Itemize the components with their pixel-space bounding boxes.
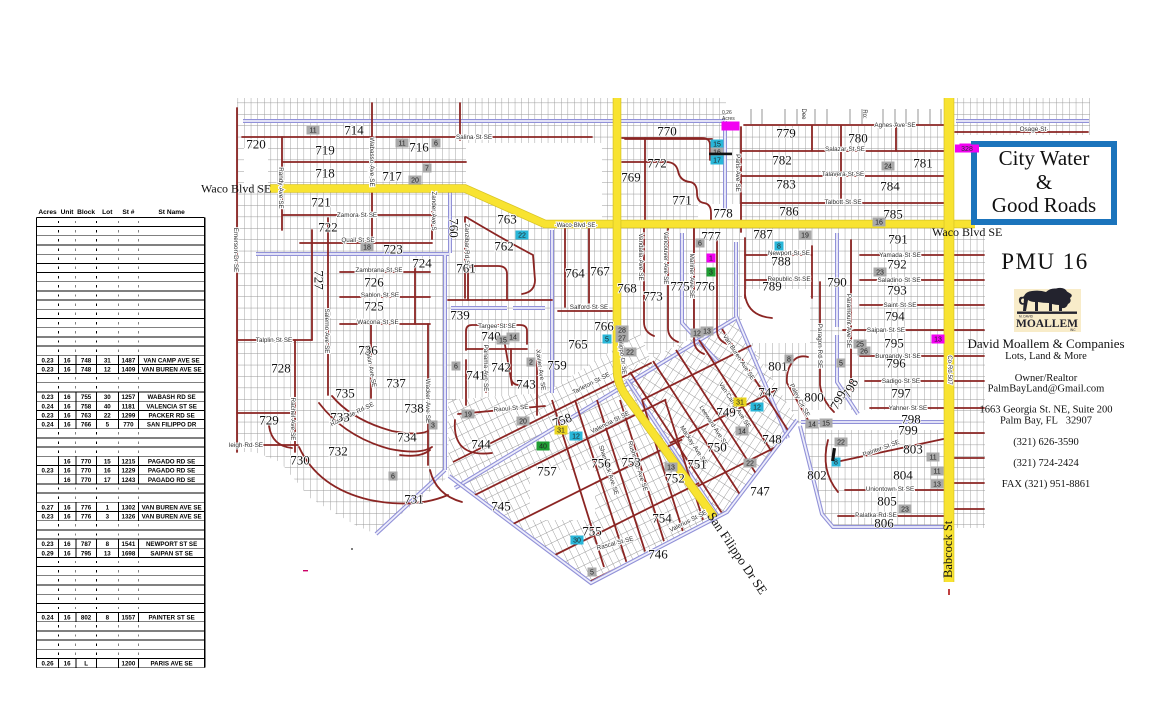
svg-text:726: 726 [364, 275, 384, 290]
svg-text:759: 759 [547, 358, 567, 373]
svg-text:16: 16 [64, 541, 71, 548]
svg-text:Zamora·St·SE: Zamora·St·SE [337, 212, 377, 219]
svg-text:737: 737 [386, 376, 406, 391]
svg-text:1200: 1200 [122, 661, 136, 668]
svg-text:778: 778 [713, 206, 733, 221]
svg-text:13: 13 [934, 337, 942, 344]
svg-text:756: 756 [591, 456, 611, 471]
svg-text:16: 16 [64, 413, 71, 420]
svg-text:Sadigo·St·SE: Sadigo·St·SE [882, 378, 920, 385]
svg-text:Wabasso·Ave·SE: Wabasso·Ave·SE [368, 137, 375, 186]
svg-text:0.24: 0.24 [41, 403, 54, 410]
svg-text:729: 729 [259, 413, 279, 428]
svg-text:5: 5 [605, 337, 609, 344]
svg-text:800: 800 [804, 390, 824, 405]
svg-text:1229: 1229 [122, 468, 136, 475]
svg-text:768: 768 [617, 281, 637, 296]
svg-text:787: 787 [753, 227, 773, 242]
svg-text:L: L [84, 661, 88, 668]
svg-text:3: 3 [709, 270, 713, 277]
svg-text:22: 22 [518, 233, 526, 240]
svg-text:17: 17 [713, 158, 721, 165]
svg-text:0.29: 0.29 [41, 550, 54, 557]
svg-text:VAN CAMP AVE SE: VAN CAMP AVE SE [144, 357, 200, 364]
svg-text:1299: 1299 [122, 413, 136, 420]
svg-text:(321) 724-2424: (321) 724-2424 [1013, 458, 1079, 469]
svg-text:PAGADO RD SE: PAGADO RD SE [148, 477, 195, 484]
svg-text:Lot: Lot [102, 209, 113, 216]
svg-text:Vancouver·Ave·SE: Vancouver·Ave·SE [662, 232, 669, 285]
svg-text:16: 16 [64, 615, 71, 622]
svg-text:St Name: St Name [158, 209, 185, 216]
svg-text:20: 20 [411, 178, 419, 185]
svg-text:748: 748 [762, 432, 782, 447]
svg-text:13: 13 [703, 329, 711, 336]
svg-text:772: 772 [647, 156, 667, 171]
svg-text:792: 792 [887, 257, 907, 272]
svg-text:748: 748 [81, 367, 92, 374]
svg-text:Saipan·St·SE: Saipan·St·SE [867, 327, 905, 334]
svg-text:0.24: 0.24 [41, 422, 54, 429]
svg-text:16: 16 [64, 661, 71, 668]
svg-text:754: 754 [652, 511, 672, 526]
svg-text:26: 26 [860, 349, 868, 356]
svg-text:19: 19 [464, 412, 472, 419]
svg-text:24: 24 [884, 164, 892, 171]
svg-text:Randy·Ave·SE: Randy·Ave·SE [277, 167, 284, 209]
svg-text:40: 40 [104, 403, 111, 410]
svg-text:14: 14 [738, 429, 746, 436]
svg-text:Lots, Land & More: Lots, Land & More [1005, 351, 1087, 362]
svg-text:791: 791 [888, 232, 908, 247]
svg-text:773: 773 [643, 289, 663, 304]
svg-text:16: 16 [64, 403, 71, 410]
svg-text:776: 776 [81, 514, 92, 521]
svg-text:6: 6 [434, 141, 438, 148]
svg-text:Zander·Ave·S: Zander·Ave·S [430, 191, 437, 230]
svg-text:12: 12 [693, 331, 701, 338]
svg-text:795: 795 [81, 550, 92, 557]
svg-text:15: 15 [104, 458, 111, 465]
svg-text:31: 31 [557, 428, 565, 435]
svg-text:PACKER RD SE: PACKER RD SE [148, 413, 194, 420]
svg-text:0.23: 0.23 [41, 541, 54, 548]
svg-text:0.23: 0.23 [41, 367, 54, 374]
svg-text:804: 804 [893, 468, 913, 483]
svg-text:793: 793 [887, 283, 907, 298]
svg-text:Salford·St·SE: Salford·St·SE [570, 304, 609, 311]
svg-text:744: 744 [471, 437, 491, 452]
svg-text:leigh·Rd·SE: leigh·Rd·SE [229, 442, 263, 449]
svg-text:8: 8 [106, 615, 110, 622]
svg-text:0.23: 0.23 [41, 413, 54, 420]
svg-text:790: 790 [827, 275, 847, 290]
svg-text:806: 806 [874, 516, 894, 531]
svg-text:760: 760 [447, 218, 462, 238]
svg-text:16: 16 [64, 468, 71, 475]
svg-text:751: 751 [687, 457, 707, 472]
svg-text:758: 758 [81, 403, 92, 410]
svg-text:14: 14 [808, 422, 816, 429]
svg-text:12: 12 [572, 434, 580, 441]
svg-text:16: 16 [875, 220, 883, 227]
svg-text:736: 736 [358, 343, 378, 358]
svg-text:735: 735 [335, 386, 355, 401]
svg-text:784: 784 [880, 179, 900, 194]
svg-text:20: 20 [519, 419, 527, 426]
svg-text:719: 719 [315, 143, 335, 158]
svg-text:16: 16 [64, 477, 71, 484]
svg-text:770: 770 [81, 477, 92, 484]
svg-text:748: 748 [81, 357, 92, 364]
svg-text:5: 5 [839, 361, 843, 368]
svg-text:797: 797 [891, 386, 911, 401]
svg-text:787: 787 [81, 541, 92, 548]
svg-text:12: 12 [753, 405, 761, 412]
svg-text:767: 767 [590, 264, 610, 279]
svg-text:19: 19 [801, 233, 809, 240]
svg-text:757: 757 [537, 464, 557, 479]
svg-text:&: & [1036, 170, 1052, 194]
svg-text:776: 776 [81, 504, 92, 511]
svg-text:802: 802 [81, 615, 92, 622]
svg-text:770: 770 [657, 124, 677, 139]
svg-text:1215: 1215 [122, 458, 136, 465]
svg-text:27: 27 [618, 336, 626, 343]
svg-text:717: 717 [382, 169, 402, 184]
svg-text:788: 788 [771, 254, 791, 269]
svg-text:16: 16 [64, 504, 71, 511]
svg-text:23: 23 [901, 507, 909, 514]
svg-text:727: 727 [312, 270, 327, 290]
svg-text:755: 755 [81, 394, 92, 401]
svg-text:796: 796 [886, 356, 906, 371]
svg-text:780: 780 [848, 131, 868, 146]
svg-text:SAIPAN ST SE: SAIPAN ST SE [150, 550, 193, 557]
svg-text:Salina·St·SE: Salina·St·SE [456, 134, 492, 141]
svg-text:14: 14 [509, 335, 517, 342]
svg-text:1: 1 [709, 256, 713, 263]
svg-text:752: 752 [665, 471, 685, 486]
svg-text:746: 746 [648, 547, 668, 562]
svg-text:Co·Rd·507: Co·Rd·507 [946, 355, 952, 385]
svg-text:INC: INC [1070, 328, 1076, 332]
svg-text:6: 6 [391, 474, 395, 481]
svg-text:720: 720 [246, 137, 266, 152]
svg-text:755: 755 [582, 524, 602, 539]
svg-text:782: 782 [772, 153, 792, 168]
svg-text:22: 22 [104, 413, 111, 420]
svg-text:742: 742 [491, 360, 511, 375]
svg-text:749: 749 [716, 405, 736, 420]
svg-text:6: 6 [698, 241, 702, 248]
svg-text:16: 16 [64, 357, 71, 364]
svg-text:16: 16 [64, 550, 71, 557]
svg-text:22: 22 [626, 350, 634, 357]
svg-text:1257: 1257 [122, 394, 136, 401]
svg-text:789: 789 [762, 279, 782, 294]
svg-text:City Water: City Water [999, 146, 1090, 170]
svg-text:769: 769 [621, 170, 641, 185]
svg-text:PAGADO RD SE: PAGADO RD SE [148, 468, 195, 475]
svg-text:1557: 1557 [122, 615, 136, 622]
svg-text:0.23: 0.23 [41, 357, 54, 364]
svg-text:Talbott·St·SE: Talbott·St·SE [824, 199, 861, 206]
svg-text:794: 794 [885, 309, 905, 324]
svg-text:0.27: 0.27 [41, 504, 54, 511]
svg-text:1: 1 [106, 504, 110, 511]
svg-text:12: 12 [104, 367, 111, 374]
svg-text:728: 728 [271, 361, 291, 376]
svg-text:0.24: 0.24 [41, 615, 54, 622]
svg-text:776: 776 [695, 279, 715, 294]
svg-text:1243: 1243 [122, 477, 136, 484]
svg-text:13: 13 [667, 465, 675, 472]
svg-text:Palm Bay, FL 32907: Palm Bay, FL 32907 [1000, 416, 1092, 427]
svg-text:16: 16 [64, 514, 71, 521]
svg-text:3: 3 [431, 423, 435, 430]
svg-text:(321) 626-3590: (321) 626-3590 [1013, 437, 1079, 448]
svg-text:PAINTER ST SE: PAINTER ST SE [148, 615, 194, 622]
svg-text:16: 16 [64, 422, 71, 429]
svg-text:Owner/Realtor: Owner/Realtor [1015, 373, 1078, 384]
svg-text:Acres: Acres [722, 116, 735, 122]
svg-text:16: 16 [64, 367, 71, 374]
svg-text:Paris·Ave·SE: Paris·Ave·SE [734, 154, 741, 192]
svg-text:770: 770 [81, 458, 92, 465]
svg-text:732: 732 [328, 444, 348, 459]
svg-text:Wacker·Ave·SE: Wacker·Ave·SE [424, 379, 431, 423]
svg-text:725: 725 [364, 299, 384, 314]
svg-text:765: 765 [568, 337, 588, 352]
svg-text:31: 31 [104, 357, 111, 364]
svg-text:VAN BUREN AVE SE: VAN BUREN AVE SE [142, 504, 202, 511]
svg-text:1409: 1409 [122, 367, 136, 374]
svg-text:766: 766 [594, 319, 614, 334]
svg-text:731: 731 [404, 492, 424, 507]
svg-text:·Waco·Blvd·SE·: ·Waco·Blvd·SE· [555, 223, 598, 229]
svg-text:Salerno·Ave·SE: Salerno·Ave·SE [323, 308, 330, 353]
svg-text:Block: Block [77, 209, 95, 216]
svg-text:Paramount·Ave·SE: Paramount·Ave·SE [845, 294, 852, 348]
svg-text:781: 781 [913, 156, 933, 171]
svg-text:786: 786 [779, 204, 799, 219]
svg-text:13: 13 [104, 550, 111, 557]
svg-text:723: 723 [383, 242, 403, 257]
svg-text:PAGADO RD SE: PAGADO RD SE [148, 458, 195, 465]
svg-text:718: 718 [315, 166, 335, 181]
svg-text:Salazar·St·SE: Salazar·St·SE [825, 146, 865, 153]
svg-text:31: 31 [736, 400, 744, 407]
svg-text:766: 766 [81, 422, 92, 429]
svg-text:6: 6 [454, 364, 458, 371]
svg-text:8: 8 [106, 541, 110, 548]
svg-text:761: 761 [456, 261, 476, 276]
svg-text:15: 15 [822, 421, 830, 428]
svg-text:Osage·St·: Osage·St· [1020, 126, 1049, 133]
svg-text:8: 8 [777, 244, 781, 251]
svg-text:770: 770 [123, 422, 134, 429]
svg-text:775: 775 [670, 279, 690, 294]
svg-text:SAN FILIPPO DR: SAN FILIPPO DR [147, 422, 197, 429]
svg-text:VAN BUREN AVE SE: VAN BUREN AVE SE [142, 367, 202, 374]
svg-text:724: 724 [412, 256, 432, 271]
svg-text:16: 16 [104, 468, 111, 475]
svg-text:Waco Blvd SE: Waco Blvd SE [201, 182, 271, 196]
svg-text:Talavera·St·SE: Talavera·St·SE [822, 171, 864, 178]
svg-text:763: 763 [497, 212, 517, 227]
svg-text:738: 738 [404, 401, 424, 416]
svg-text:785: 785 [883, 207, 903, 222]
svg-text:795: 795 [884, 336, 904, 351]
svg-text:VAN BUREN AVE SE: VAN BUREN AVE SE [142, 514, 202, 521]
svg-text:13: 13 [933, 482, 941, 489]
svg-text:17: 17 [104, 477, 111, 484]
svg-text:714: 714 [344, 123, 364, 138]
svg-text:11: 11 [398, 141, 405, 148]
svg-text:Dee: Dee [800, 108, 806, 120]
svg-text:18: 18 [363, 245, 371, 252]
svg-text:0.26: 0.26 [41, 661, 54, 668]
svg-text:733: 733 [330, 410, 350, 425]
svg-text:328: 328 [961, 146, 973, 153]
svg-text:799: 799 [898, 423, 918, 438]
svg-text:743: 743 [516, 377, 536, 392]
svg-text:802: 802 [807, 468, 827, 483]
svg-text:5: 5 [590, 570, 594, 577]
svg-text:Emerson·Dr·SE: Emerson·Dr·SE [232, 228, 239, 272]
svg-text:770: 770 [81, 468, 92, 475]
svg-text:8: 8 [787, 357, 791, 364]
svg-text:PalmBayLand@Gmail.com: PalmBayLand@Gmail.com [988, 384, 1105, 395]
svg-text:739: 739 [450, 308, 470, 323]
svg-text:1326: 1326 [122, 514, 136, 521]
svg-text:Good Roads: Good Roads [992, 193, 1096, 217]
svg-text:3: 3 [106, 514, 110, 521]
svg-text:734: 734 [397, 430, 417, 445]
svg-text:PARIS AVE SE: PARIS AVE SE [151, 661, 193, 668]
svg-text:1181: 1181 [122, 403, 136, 410]
svg-text:23: 23 [876, 270, 884, 277]
svg-text:730: 730 [290, 453, 310, 468]
svg-text:40: 40 [539, 444, 547, 451]
svg-text:763: 763 [81, 413, 92, 420]
svg-text:Babcock St: Babcock St [941, 520, 955, 578]
svg-text:11: 11 [933, 469, 940, 476]
svg-text:764: 764 [565, 266, 585, 281]
svg-text:0.23: 0.23 [41, 514, 54, 521]
svg-text:1487: 1487 [122, 357, 136, 364]
svg-text:San Filippo Dr SE: San Filippo Dr SE [705, 509, 771, 597]
svg-text:22: 22 [746, 461, 754, 468]
svg-text:1698: 1698 [122, 550, 136, 557]
svg-text:1663 Georgia St. NE, Suite 200: 1663 Georgia St. NE, Suite 200 [979, 405, 1112, 416]
svg-text:Talplin·St·SE: Talplin·St·SE [256, 337, 292, 344]
svg-text:1541: 1541 [122, 541, 136, 548]
svg-text:Waco Blvd SE: Waco Blvd SE [932, 225, 1002, 239]
svg-text:722: 722 [318, 220, 338, 235]
svg-text:Unit: Unit [61, 209, 75, 216]
svg-text:16: 16 [64, 394, 71, 401]
svg-text:PMU 16: PMU 16 [1001, 249, 1089, 274]
svg-text:8: 8 [834, 460, 838, 467]
svg-text:Wacona·St·SE: Wacona·St·SE [357, 319, 398, 326]
svg-text:7: 7 [425, 166, 429, 173]
svg-text:15: 15 [499, 338, 507, 345]
svg-text:Rachel·Ave·SE: Rachel·Ave·SE [289, 398, 296, 441]
svg-text:Paragon·Rd·SE: Paragon·Rd·SE [816, 324, 823, 368]
svg-text:783: 783 [776, 177, 796, 192]
svg-text:762: 762 [494, 239, 514, 254]
svg-text:11: 11 [929, 455, 936, 462]
svg-text:747: 747 [758, 385, 778, 400]
svg-text:WABASH RD SE: WABASH RD SE [148, 394, 196, 401]
svg-text:MOALLEM: MOALLEM [1016, 318, 1078, 330]
svg-text:FAX (321) 951-8861: FAX (321) 951-8861 [1002, 479, 1090, 490]
svg-text:0.23: 0.23 [41, 394, 54, 401]
svg-text:16: 16 [64, 458, 71, 465]
svg-text:Vandalia·Ave·SE: Vandalia·Ave·SE [637, 233, 644, 280]
svg-text:Acres: Acres [38, 209, 57, 216]
svg-text:779: 779 [776, 126, 796, 141]
svg-text:11: 11 [309, 128, 316, 135]
svg-text:St #: St # [122, 209, 134, 216]
svg-text:716: 716 [409, 140, 429, 155]
svg-text:803: 803 [903, 442, 923, 457]
svg-text:22: 22 [837, 440, 845, 447]
svg-text:VALENCIA ST SE: VALENCIA ST SE [146, 403, 197, 410]
svg-text:747: 747 [750, 484, 770, 499]
svg-text:1302: 1302 [122, 504, 136, 511]
svg-text:David Moallem & Companies: David Moallem & Companies [967, 336, 1124, 351]
svg-text:721: 721 [311, 195, 331, 210]
svg-text:805: 805 [877, 494, 897, 509]
svg-text:NEWPORT ST SE: NEWPORT ST SE [146, 541, 197, 548]
svg-text:30: 30 [104, 394, 111, 401]
svg-text:753: 753 [621, 455, 641, 470]
svg-text:741: 741 [466, 368, 486, 383]
svg-text:Zambrana·St·SE: Zambrana·St·SE [355, 267, 402, 274]
svg-text:Uniontown·St·SE: Uniontown·St·SE [866, 486, 914, 493]
svg-text:30: 30 [573, 538, 581, 545]
svg-text:2: 2 [529, 360, 533, 367]
svg-text:771: 771 [672, 193, 692, 208]
svg-text:750: 750 [707, 440, 727, 455]
svg-text:745: 745 [491, 499, 511, 514]
svg-text:0.23: 0.23 [41, 468, 54, 475]
svg-text:5: 5 [106, 422, 110, 429]
